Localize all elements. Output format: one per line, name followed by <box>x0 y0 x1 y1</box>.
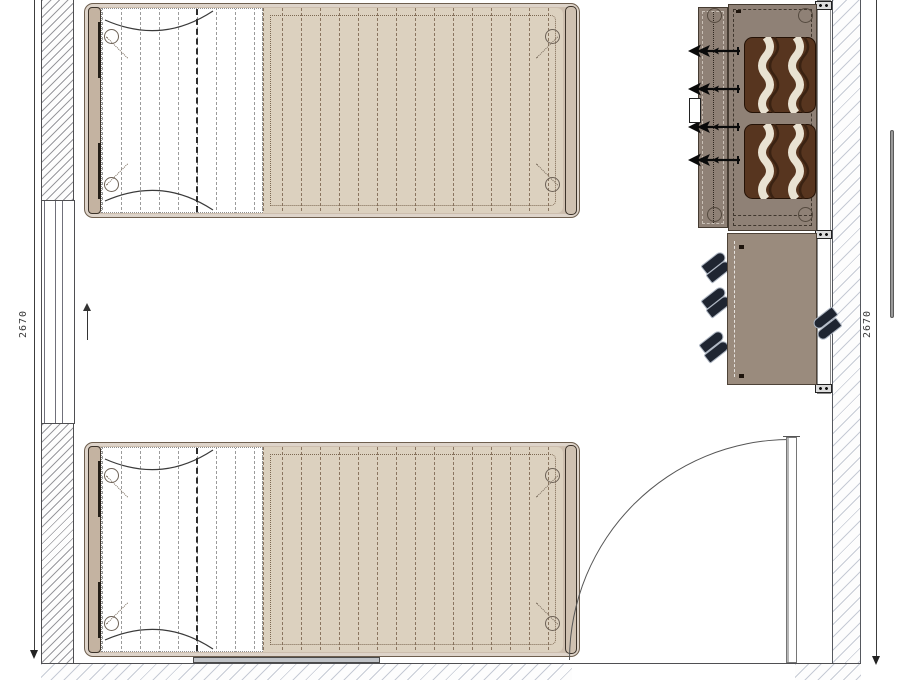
hanger-icon <box>688 43 742 59</box>
wall-bracket-icon <box>815 230 832 239</box>
dimension-label-right: 2670 <box>862 307 874 341</box>
door-frame-tick <box>783 436 800 437</box>
folded-blanket <box>744 124 816 199</box>
window-frame-line <box>44 201 45 423</box>
sheet-fold-line <box>196 9 198 212</box>
shoe-cabinet[interactable] <box>727 233 817 385</box>
hanger-icon <box>688 152 742 168</box>
wall-bottom-right-segment <box>795 664 861 680</box>
bed-bottom[interactable] <box>84 442 580 657</box>
dimension-label-left: 2670 <box>18 307 30 341</box>
sheet-fold-curves <box>101 447 263 652</box>
door-leaf[interactable] <box>786 437 797 663</box>
sheet-fold-curves <box>101 8 263 213</box>
wall-right <box>832 0 861 680</box>
window-indicator-arrow <box>87 308 88 340</box>
hanger-icon <box>688 81 742 97</box>
rail-support-box <box>689 98 701 123</box>
duvet-stitch-border <box>270 454 556 645</box>
right-side-rod <box>890 130 894 318</box>
duvet-stitch-border <box>270 15 556 206</box>
window-left <box>41 200 75 424</box>
wall-bottom-left-segment <box>41 664 572 680</box>
dimension-line-right <box>876 0 877 663</box>
wardrobe-side-section[interactable] <box>698 7 728 228</box>
cad-mark <box>739 245 744 249</box>
window-glass-line <box>62 201 63 423</box>
dimension-arrow-icon <box>30 650 38 659</box>
fitting-circle <box>707 207 722 222</box>
bed-top[interactable] <box>84 3 580 218</box>
fitting-circle <box>798 207 813 222</box>
door-swing-arc <box>569 439 790 660</box>
stitch-line <box>734 241 735 377</box>
floor-plan-canvas: 2670 2670 <box>0 0 910 680</box>
cad-mark <box>736 10 741 13</box>
dimension-arrow-icon <box>872 656 880 665</box>
fitting-circle <box>798 8 813 23</box>
folded-blanket <box>744 37 816 113</box>
cad-mark <box>739 374 744 378</box>
fitting-circle <box>707 8 722 23</box>
sheet-fold-line <box>196 448 198 651</box>
window-glass-line <box>55 201 56 423</box>
headboard <box>88 446 101 653</box>
bottom-wall-inner-edge <box>41 663 861 664</box>
wall-bracket-icon <box>815 1 832 10</box>
headboard <box>88 7 101 214</box>
footboard <box>565 6 577 215</box>
wall-bracket-icon <box>815 384 832 393</box>
dimension-line-left <box>34 0 35 657</box>
underbed-shadow-bar <box>193 657 380 663</box>
arrow-up-icon <box>83 303 91 311</box>
